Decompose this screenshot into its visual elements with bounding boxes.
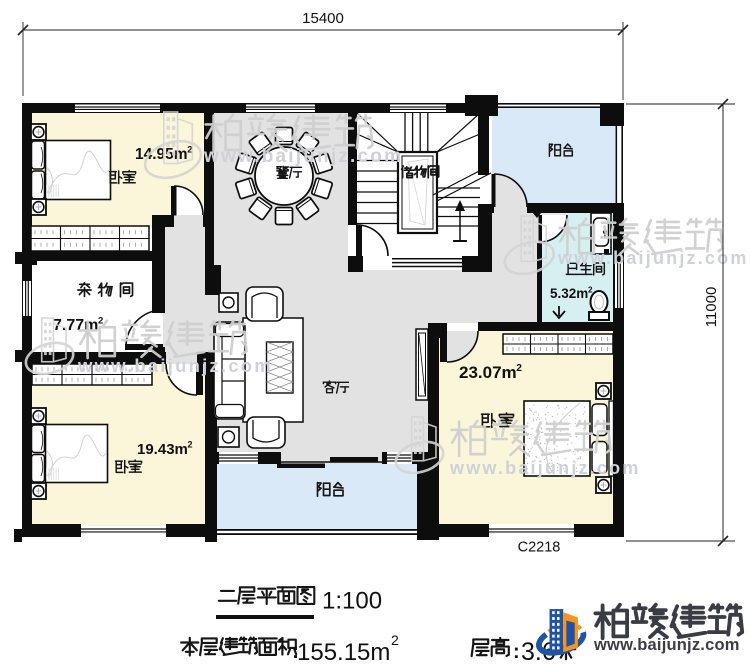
svg-text:2: 2 — [188, 440, 193, 450]
svg-text:2: 2 — [391, 632, 399, 648]
svg-text:2: 2 — [588, 285, 593, 294]
svg-text:11000: 11000 — [703, 287, 720, 328]
svg-text:www.baijunjz.com: www.baijunjz.com — [557, 248, 749, 268]
svg-text:www.baijunjz.com: www.baijunjz.com — [203, 146, 403, 167]
svg-text:15400: 15400 — [302, 10, 344, 27]
svg-text:www.baijunjz.com: www.baijunjz.com — [593, 636, 740, 654]
svg-text::: : — [513, 641, 520, 663]
svg-text:www.baijunjz.com: www.baijunjz.com — [77, 355, 273, 376]
svg-text:23.07m: 23.07m — [459, 363, 517, 382]
svg-text:www.baijunjz.com: www.baijunjz.com — [449, 458, 641, 478]
svg-text:19.43m: 19.43m — [137, 441, 188, 458]
svg-text:1:100: 1:100 — [322, 588, 382, 615]
svg-text:155.15m: 155.15m — [297, 639, 390, 666]
svg-text:5.32m: 5.32m — [550, 286, 588, 301]
svg-text:14.95m: 14.95m — [135, 146, 188, 163]
svg-text:C2218: C2218 — [518, 540, 561, 556]
svg-text:2: 2 — [516, 363, 522, 374]
